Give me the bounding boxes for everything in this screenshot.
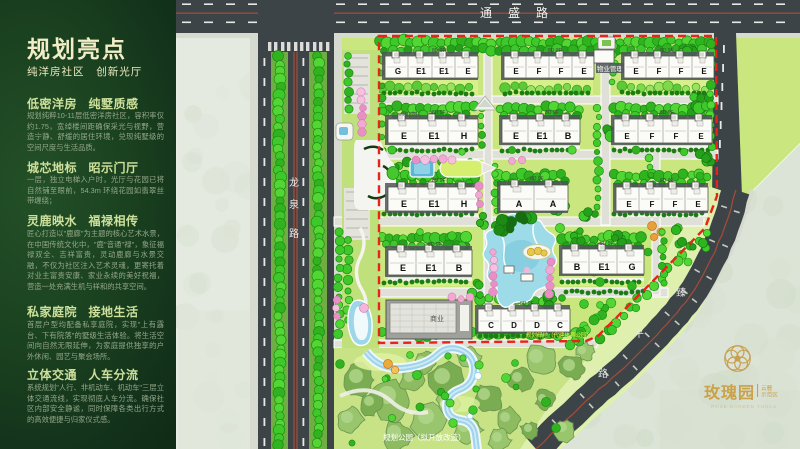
svg-text:E: E [401,131,407,141]
svg-text:F: F [673,200,678,209]
svg-text:E: E [400,263,406,273]
svg-text:D: D [534,321,540,330]
svg-text:8D 9F: 8D 9F [545,110,559,116]
svg-text:龙: 龙 [289,176,299,189]
svg-text:B: B [456,263,463,273]
svg-text:8D 9F: 8D 9F [600,241,614,247]
svg-text:E: E [633,67,639,76]
svg-text:F: F [674,132,679,141]
svg-text:8D 9F: 8D 9F [428,242,442,248]
svg-text:G: G [395,67,401,76]
svg-text:物业管理: 物业管理 [597,64,624,73]
svg-text:E: E [513,67,519,76]
svg-text:F: F [679,67,684,76]
svg-text:规划绿地（代建体育公园）: 规划绿地（代建体育公园） [526,331,592,339]
svg-text:H: H [461,199,468,209]
svg-text:E: E [624,132,630,141]
svg-text:E: E [513,131,519,141]
svg-text:E: E [465,67,471,76]
svg-text:示范区: 示范区 [761,391,778,399]
svg-text:玫瑰园: 玫瑰园 [704,383,755,402]
svg-text:云麓: 云麓 [761,384,773,392]
svg-text:泉: 泉 [289,198,299,211]
svg-text:E1: E1 [598,262,609,272]
svg-text:B: B [565,131,572,141]
svg-text:路: 路 [598,367,608,380]
svg-text:8D 9F: 8D 9F [432,178,446,184]
svg-text:E1: E1 [428,199,439,209]
svg-text:E: E [401,199,407,209]
svg-text:E1: E1 [416,67,426,76]
svg-text:D: D [511,321,517,330]
svg-text:臻: 臻 [676,286,686,299]
svg-text:ROSE GARDEN YUNLU: ROSE GARDEN YUNLU [711,404,777,409]
svg-text:E: E [581,67,587,76]
svg-text:F: F [657,67,662,76]
svg-text:E1: E1 [425,263,436,273]
svg-text:C: C [488,321,494,330]
svg-text:8D 9F: 8D 9F [432,110,446,116]
svg-text:E: E [701,67,707,76]
svg-text:路: 路 [289,227,299,240]
svg-text:E: E [695,200,701,209]
svg-text:F: F [537,67,542,76]
svg-text:G: G [628,262,635,272]
svg-text:平: 平 [634,329,644,340]
svg-text:8D 9F: 8D 9F [520,301,534,307]
svg-text:规划公园（拟开放改造）: 规划公园（拟开放改造） [383,432,466,442]
svg-text:8D 9F: 8D 9F [660,110,674,116]
svg-text:H: H [461,131,468,141]
svg-text:8D 9F: 8D 9F [660,48,674,54]
svg-text:8D 9F: 8D 9F [530,176,544,182]
svg-text:E: E [626,200,632,209]
svg-text:8D 9F: 8D 9F [432,48,446,54]
svg-text:54.3m环绕花园: 54.3m环绕花园 [390,111,421,118]
svg-text:E1: E1 [428,131,439,141]
svg-text:E: E [698,132,704,141]
svg-text:B: B [574,262,581,272]
svg-text:商业: 商业 [430,314,444,323]
svg-text:F: F [650,200,655,209]
svg-text:E1: E1 [536,131,547,141]
svg-text:F: F [559,67,564,76]
svg-text:F: F [650,132,655,141]
svg-text:8D 9F: 8D 9F [660,178,674,184]
svg-text:C: C [557,321,563,330]
svg-text:E1: E1 [439,67,449,76]
svg-text:通盛路: 通盛路 [480,5,564,20]
svg-text:8D 9F: 8D 9F [548,48,562,54]
svg-text:A: A [516,199,523,209]
svg-text:A: A [550,199,557,209]
